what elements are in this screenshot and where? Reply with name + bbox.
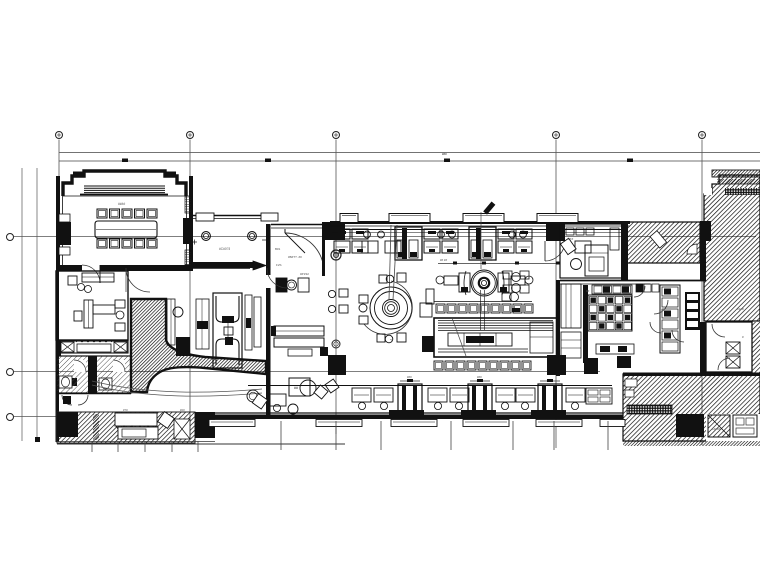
svg-text:###: ### [442,152,447,156]
svg-text:L####: L#### [712,427,721,431]
svg-text:##: ## [586,289,590,293]
svg-text:#B#T?. ##: #B#T?. ## [288,255,302,259]
svg-text:####: #### [118,202,125,206]
svg-text:## ##: ## ## [440,258,447,262]
svg-text:###: ### [477,375,482,379]
svg-text:#7#: #7# [123,408,128,412]
svg-text:#C#0?3: #C#0?3 [219,247,230,251]
svg-text:#T#: #T# [568,237,574,241]
svg-text:F2S: F2S [276,263,282,267]
svg-text:#1##: #1## [737,307,744,311]
svg-text:##: ## [294,386,298,390]
svg-text:##: ## [492,258,496,262]
svg-text:###: ### [407,375,412,379]
svg-text:B#1: B#1 [275,247,281,251]
svg-text:*#: *# [390,338,393,342]
svg-text:##'#32: ##'#32 [300,272,309,276]
svg-text:#2#: #2# [180,408,185,412]
